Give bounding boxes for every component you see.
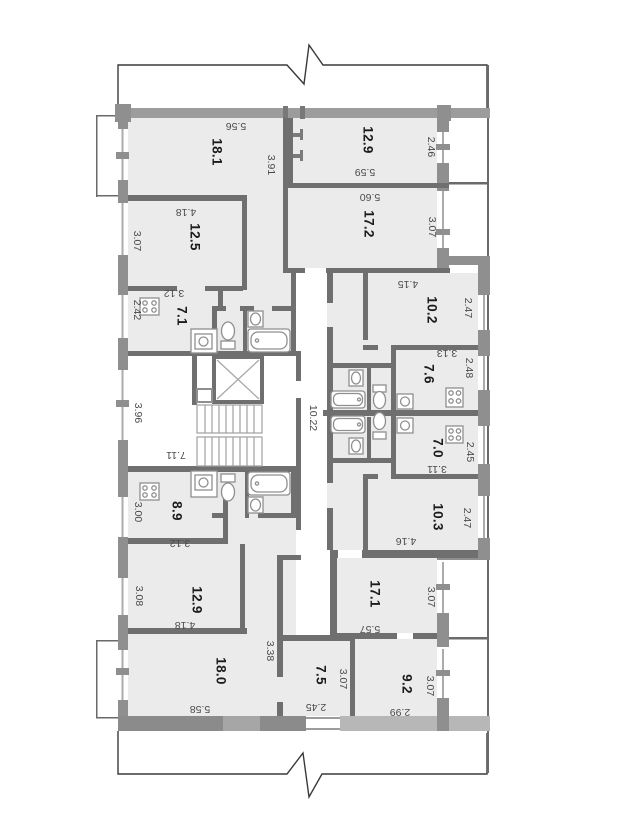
room-area-label: 17.2 (362, 210, 377, 237)
room-area-label: 10.2 (425, 296, 440, 323)
dimension-label: 3.38 (264, 641, 276, 661)
dimension-label: 5.60 (360, 191, 380, 203)
dimension-label: 3.91 (265, 155, 277, 175)
dimension-label: 2.47 (461, 508, 473, 528)
dimension-label: 3.07 (131, 231, 143, 251)
sink-icon (248, 497, 263, 513)
room-area-label: 9.2 (400, 674, 415, 694)
dimension-label: 3.12 (170, 537, 190, 549)
dimension-label: 5.59 (355, 166, 375, 178)
dimension-label: 5.58 (190, 703, 210, 715)
dimension-label: 2.46 (425, 137, 437, 157)
kitchen-sink-icon (397, 394, 413, 409)
room-area-label: 17.1 (368, 580, 383, 607)
toilet-icon (221, 322, 235, 349)
dimension-label: 2.47 (462, 298, 474, 318)
bathtub-icon (331, 391, 365, 408)
sink-icon (349, 370, 363, 386)
kitchen-sink-icon (397, 418, 413, 433)
room-area-label: 18.0 (214, 657, 229, 684)
dimension-label: 2.45 (464, 442, 476, 462)
dimension-label: 2.42 (131, 300, 143, 320)
stove-icon (446, 426, 463, 443)
dimension-label: 3.11 (427, 463, 447, 475)
basin-niche-icon (191, 471, 217, 497)
stove-icon (446, 388, 463, 407)
sink-icon (349, 438, 363, 454)
break-line-bottom (118, 731, 487, 797)
dimension-label: 4.18 (176, 206, 196, 218)
room-area-label: 18.1 (210, 138, 225, 165)
room-area-label: 12.9 (190, 586, 205, 613)
dimension-label: 4.16 (396, 535, 416, 547)
room-area-label: 7.0 (431, 438, 446, 458)
bathtub-icon (248, 329, 290, 352)
room-area-label: 7.1 (175, 306, 190, 326)
toilet-icon (373, 385, 386, 409)
staircase (197, 405, 262, 466)
room-area-label: 12.5 (188, 223, 203, 250)
dimension-label: 4.15 (398, 278, 418, 290)
elevator-shaft (197, 357, 262, 402)
break-line-top (118, 45, 487, 108)
sink-icon (248, 311, 263, 327)
dimension-label: 4.18 (175, 619, 195, 631)
dimension-label: 2.48 (463, 358, 475, 378)
dimension-label: 3.07 (337, 669, 349, 689)
dimension-label: 5.56 (226, 120, 246, 132)
dimension-label: 3.08 (133, 586, 145, 606)
room-area-label: 7.6 (422, 364, 437, 384)
dimension-label: 3.96 (132, 403, 144, 423)
dimension-label: 2.99 (390, 706, 410, 718)
dimension-label: 3.07 (424, 676, 436, 696)
dimension-label: 3.13 (437, 347, 457, 359)
room-area-label: 7.5 (314, 665, 329, 685)
bathtub-icon (248, 472, 290, 495)
dimension-label: 3.07 (425, 587, 437, 607)
bathtub-icon (331, 416, 365, 433)
dimension-label: 7.11 (166, 449, 186, 461)
dimension-label: 3.12 (164, 287, 184, 299)
room-area-label: 10.3 (431, 503, 446, 530)
basin-niche-icon (191, 329, 217, 353)
dimension-label: 3.00 (132, 502, 144, 522)
dimension-label: 2.45 (306, 701, 326, 713)
floor-plan: 18.1 12.5 7.1 12.9 17.2 10.2 7.6 7.0 10.… (0, 0, 623, 831)
dimension-label: 10.22 (307, 405, 319, 431)
toilet-icon (221, 474, 235, 501)
dimension-label: 3.07 (426, 217, 438, 237)
room-area-label: 12.9 (361, 126, 376, 153)
duct-shaft (197, 389, 212, 402)
dimension-label: 5.57 (360, 623, 380, 635)
stove-icon (140, 483, 159, 500)
toilet-icon (373, 413, 386, 440)
room-area-label: 8.9 (170, 501, 185, 521)
